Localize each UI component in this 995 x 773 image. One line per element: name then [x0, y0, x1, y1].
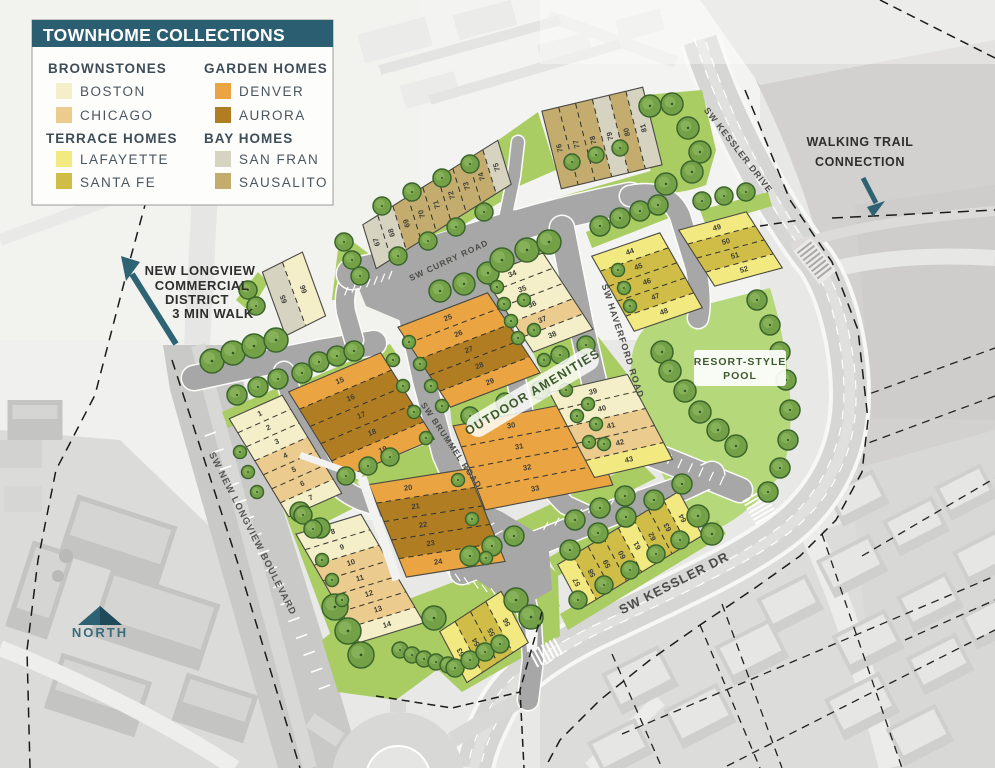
svg-text:BOSTON: BOSTON: [80, 84, 146, 99]
svg-text:SANTA FE: SANTA FE: [80, 175, 156, 190]
svg-text:NORTH: NORTH: [72, 625, 128, 640]
svg-text:RESORT-STYLE: RESORT-STYLE: [694, 356, 787, 368]
svg-text:GARDEN HOMES: GARDEN HOMES: [204, 61, 328, 76]
svg-text:22: 22: [418, 520, 428, 530]
svg-text:DENVER: DENVER: [239, 84, 304, 99]
svg-text:POOL: POOL: [723, 370, 757, 382]
svg-text:BROWNSTONES: BROWNSTONES: [48, 61, 167, 76]
svg-text:32: 32: [522, 462, 532, 472]
svg-text:30: 30: [506, 420, 516, 430]
svg-text:LAFAYETTE: LAFAYETTE: [80, 152, 169, 167]
svg-text:AURORA: AURORA: [239, 108, 306, 123]
svg-text:31: 31: [514, 441, 524, 451]
svg-text:21: 21: [411, 501, 421, 511]
svg-text:3 MIN WALK: 3 MIN WALK: [172, 306, 254, 321]
svg-text:NEW LONGVIEW: NEW LONGVIEW: [145, 263, 256, 278]
svg-text:COMMERCIAL: COMMERCIAL: [155, 278, 250, 293]
svg-text:BAY HOMES: BAY HOMES: [204, 131, 293, 146]
svg-text:20: 20: [403, 483, 413, 493]
svg-text:TOWNHOME COLLECTIONS: TOWNHOME COLLECTIONS: [43, 25, 285, 45]
svg-text:CHICAGO: CHICAGO: [80, 108, 154, 123]
svg-text:DISTRICT: DISTRICT: [165, 292, 229, 307]
svg-text:33: 33: [530, 483, 540, 493]
svg-text:23: 23: [426, 538, 436, 548]
svg-text:SAN FRAN: SAN FRAN: [239, 152, 319, 167]
svg-text:TERRACE HOMES: TERRACE HOMES: [46, 131, 178, 146]
svg-text:SAUSALITO: SAUSALITO: [239, 175, 328, 190]
svg-text:CONNECTION: CONNECTION: [815, 155, 905, 169]
svg-text:WALKING TRAIL: WALKING TRAIL: [806, 135, 913, 149]
